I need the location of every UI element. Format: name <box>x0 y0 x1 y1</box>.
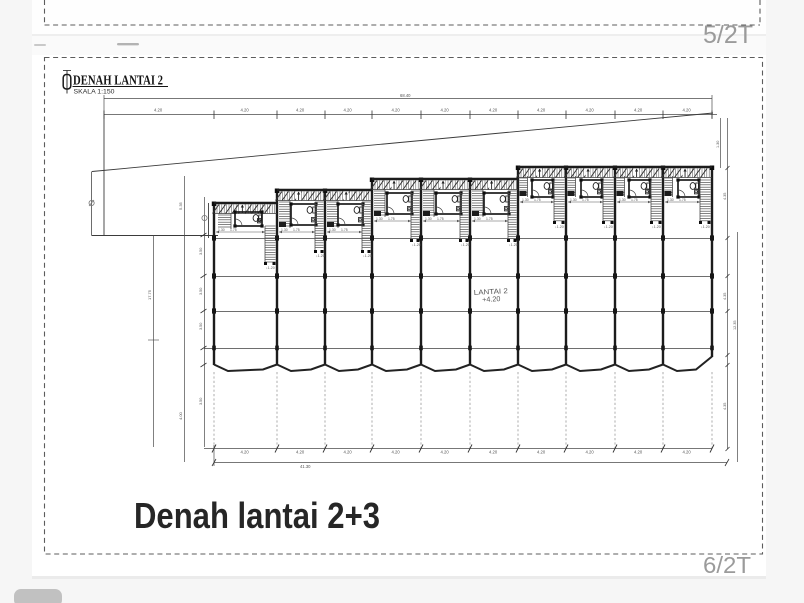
svg-text:4.20: 4.20 <box>154 108 163 113</box>
svg-text:1.75: 1.75 <box>341 228 348 232</box>
svg-text:1.30: 1.30 <box>218 228 225 232</box>
svg-text:4.20: 4.20 <box>392 108 401 113</box>
svg-text:↓1.20: ↓1.20 <box>701 225 710 229</box>
svg-text:4.20: 4.20 <box>441 108 450 113</box>
svg-text:3.50: 3.50 <box>199 398 203 405</box>
svg-text:5/2T: 5/2T <box>703 21 753 49</box>
svg-text:4.20: 4.20 <box>537 450 546 455</box>
svg-text:4.20: 4.20 <box>344 450 353 455</box>
svg-text:4.20: 4.20 <box>489 108 498 113</box>
svg-text:DENAH LANTAI 2: DENAH LANTAI 2 <box>73 73 163 88</box>
svg-text:4.20: 4.20 <box>241 108 250 113</box>
svg-text:4.20: 4.20 <box>296 450 305 455</box>
svg-text:3.50: 3.50 <box>199 323 203 330</box>
svg-text:1.30: 1.30 <box>667 198 674 202</box>
svg-text:↓1.20: ↓1.20 <box>555 225 564 229</box>
svg-text:↓1.20: ↓1.20 <box>509 243 518 247</box>
svg-text:4.20: 4.20 <box>586 450 595 455</box>
svg-text:4.20: 4.20 <box>683 450 692 455</box>
svg-text:1.75: 1.75 <box>582 198 589 202</box>
svg-text:4.20: 4.20 <box>586 108 595 113</box>
svg-text:↓1.20: ↓1.20 <box>652 225 661 229</box>
svg-text:+4.20: +4.20 <box>482 294 501 304</box>
svg-text:1.30: 1.30 <box>619 198 626 202</box>
svg-text:4.20: 4.20 <box>683 108 692 113</box>
svg-text:17.75: 17.75 <box>147 289 152 300</box>
svg-text:4.20: 4.20 <box>241 450 250 455</box>
svg-text:↓1.20: ↓1.20 <box>412 243 421 247</box>
svg-text:1.30: 1.30 <box>570 198 577 202</box>
svg-text:1.75: 1.75 <box>534 198 541 202</box>
svg-text:4.20: 4.20 <box>344 108 353 113</box>
svg-text:1.30: 1.30 <box>425 217 432 221</box>
svg-text:1.75: 1.75 <box>293 228 300 232</box>
svg-text:1.30: 1.30 <box>716 141 720 148</box>
svg-text:1.75: 1.75 <box>631 198 638 202</box>
svg-text:↓1.20: ↓1.20 <box>604 225 613 229</box>
svg-text:1.30: 1.30 <box>281 228 288 232</box>
svg-text:↓1.20: ↓1.20 <box>461 243 470 247</box>
svg-text:1.75: 1.75 <box>486 217 493 221</box>
svg-text:4.20: 4.20 <box>489 450 498 455</box>
svg-text:↓1.20: ↓1.20 <box>363 254 372 258</box>
svg-text:3.50: 3.50 <box>199 248 203 255</box>
svg-text:SKALA 1:150: SKALA 1:150 <box>74 89 116 96</box>
svg-text:3.50: 3.50 <box>199 288 203 295</box>
svg-text:1.75: 1.75 <box>679 198 686 202</box>
svg-text:4.20: 4.20 <box>634 108 643 113</box>
svg-text:4.20: 4.20 <box>296 108 305 113</box>
svg-text:1.75: 1.75 <box>388 217 395 221</box>
svg-text:Denah lantai 2+3: Denah lantai 2+3 <box>134 495 380 536</box>
svg-text:1.30: 1.30 <box>329 228 336 232</box>
svg-text:4.20: 4.20 <box>537 108 546 113</box>
svg-text:↓1.20: ↓1.20 <box>266 266 275 270</box>
svg-text:4.20: 4.20 <box>634 450 643 455</box>
svg-text:↓1.20: ↓1.20 <box>316 254 325 258</box>
svg-text:4.20: 4.20 <box>441 450 450 455</box>
svg-text:4.35: 4.35 <box>723 293 727 300</box>
svg-text:1.75: 1.75 <box>437 217 444 221</box>
svg-text:6/2T: 6/2T <box>703 552 751 578</box>
svg-text:1.30: 1.30 <box>522 198 529 202</box>
svg-text:68.40: 68.40 <box>400 93 411 98</box>
svg-text:5.35: 5.35 <box>178 201 183 210</box>
svg-text:41.30: 41.30 <box>300 464 311 469</box>
svg-text:1.75: 1.75 <box>230 228 237 232</box>
svg-text:1.30: 1.30 <box>474 217 481 221</box>
svg-text:4.00: 4.00 <box>178 411 183 420</box>
svg-text:4.35: 4.35 <box>723 403 727 410</box>
svg-text:4.20: 4.20 <box>392 450 401 455</box>
svg-text:4.35: 4.35 <box>723 193 727 200</box>
svg-text:1.30: 1.30 <box>376 217 383 221</box>
svg-text:12.35: 12.35 <box>733 320 737 330</box>
